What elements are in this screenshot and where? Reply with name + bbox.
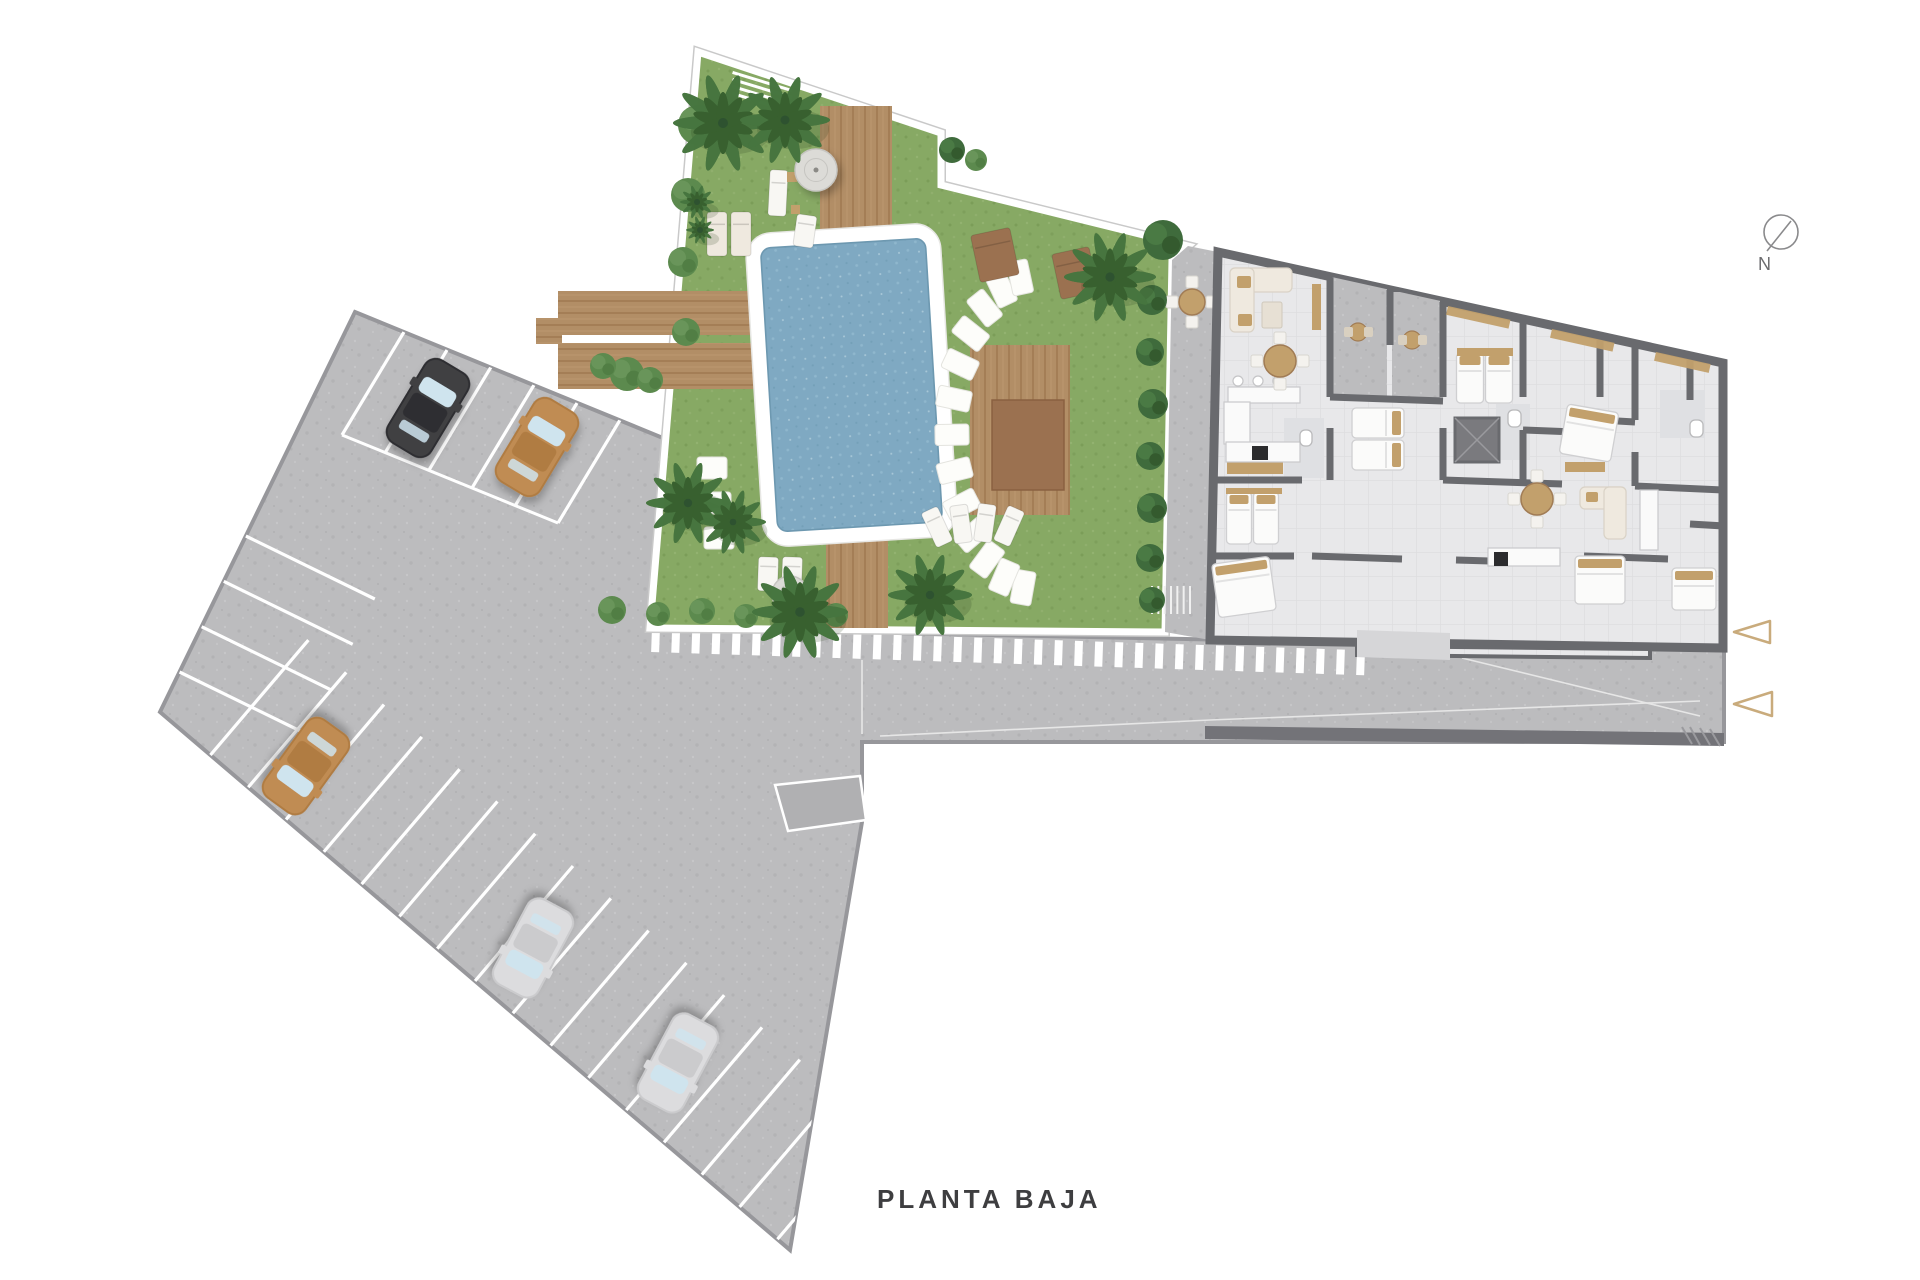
bush-shade bbox=[1162, 236, 1180, 254]
entry-marker-triangles bbox=[1734, 621, 1772, 716]
bed-pillow bbox=[1489, 356, 1510, 365]
bush-shade bbox=[649, 377, 661, 389]
chair bbox=[1274, 332, 1286, 344]
bed bbox=[1352, 408, 1404, 438]
palm-crown bbox=[781, 116, 790, 125]
interior-wall bbox=[1690, 524, 1724, 526]
bush-shade bbox=[951, 147, 963, 159]
bush-shade bbox=[975, 158, 985, 168]
border-stripe bbox=[1014, 639, 1023, 664]
border-stripe bbox=[1175, 644, 1184, 669]
chair bbox=[1166, 296, 1178, 308]
tv-sideboard bbox=[1227, 462, 1283, 474]
compass: N bbox=[1758, 215, 1798, 274]
palm-crown bbox=[795, 607, 805, 617]
sofa bbox=[1604, 487, 1626, 539]
lounger-base bbox=[768, 170, 788, 217]
tv-sideboard bbox=[1565, 462, 1605, 472]
border-stripe bbox=[853, 634, 862, 659]
toilet bbox=[1300, 430, 1312, 446]
border-stripe bbox=[1074, 641, 1083, 666]
interior-wall bbox=[1312, 556, 1402, 559]
round-table bbox=[1179, 289, 1205, 315]
sun-lounger bbox=[793, 214, 817, 248]
bed bbox=[1672, 568, 1716, 610]
bed-mattress bbox=[1647, 287, 1701, 344]
bed-pillow bbox=[1578, 559, 1622, 568]
site-plan-svg: N PLANTA BAJA bbox=[0, 0, 1920, 1280]
palm-crown bbox=[694, 199, 700, 205]
bed-pillow bbox=[1460, 356, 1481, 365]
stove bbox=[1494, 552, 1508, 566]
side-table bbox=[791, 205, 800, 214]
bush-shade bbox=[685, 329, 698, 342]
palm-crown bbox=[730, 519, 737, 526]
palm-crown bbox=[697, 227, 703, 233]
swimming-pool bbox=[745, 222, 959, 547]
palm-crown bbox=[1105, 272, 1114, 281]
palm-crown bbox=[684, 499, 692, 507]
chair bbox=[1554, 493, 1566, 505]
north-label: N bbox=[1758, 254, 1772, 274]
chair bbox=[1251, 355, 1263, 367]
deck-pergola bbox=[992, 400, 1064, 490]
bed bbox=[1227, 492, 1252, 544]
bush-shade bbox=[745, 614, 756, 625]
border-stripe bbox=[1276, 647, 1285, 672]
border-stripe bbox=[752, 630, 761, 655]
coffee-table bbox=[1262, 302, 1282, 328]
border-stripe bbox=[994, 638, 1003, 663]
bush-shade bbox=[701, 608, 713, 620]
border-stripe bbox=[873, 634, 882, 659]
bush-shade bbox=[602, 363, 614, 375]
sofa-cushion bbox=[1237, 276, 1251, 288]
headboard bbox=[1457, 348, 1513, 356]
stove bbox=[1252, 446, 1268, 460]
bush-shade bbox=[1151, 597, 1163, 609]
border-stripe bbox=[1215, 645, 1224, 670]
bistro-chair bbox=[1344, 327, 1353, 337]
chair bbox=[1297, 355, 1309, 367]
bed-pillow bbox=[1230, 495, 1249, 504]
bush-shade bbox=[1152, 401, 1166, 415]
interior-wall bbox=[1443, 480, 1562, 484]
border-stripe bbox=[1316, 649, 1325, 674]
bed-pillow bbox=[1392, 411, 1401, 435]
bed bbox=[1647, 287, 1701, 344]
bed bbox=[1212, 556, 1277, 618]
chair bbox=[1531, 470, 1543, 482]
bistro-chair bbox=[1364, 327, 1373, 337]
parasol-pole bbox=[814, 168, 819, 173]
lounger-fold bbox=[772, 183, 786, 184]
ramp-outline bbox=[775, 776, 866, 831]
lounger-base bbox=[731, 212, 751, 256]
bush-shade bbox=[682, 259, 696, 273]
round-table bbox=[1521, 483, 1553, 515]
pool-water bbox=[760, 238, 942, 532]
border-stripe bbox=[933, 636, 942, 661]
bed bbox=[1559, 404, 1619, 462]
bed bbox=[1575, 556, 1625, 604]
border-stripe bbox=[1114, 642, 1123, 667]
bistro-chair bbox=[1398, 335, 1407, 345]
border-stripe bbox=[913, 636, 922, 661]
sofa-cushion bbox=[1238, 314, 1252, 326]
kitchen-counter bbox=[1228, 387, 1300, 403]
sofa-cushion bbox=[1586, 492, 1598, 502]
bed-pillow bbox=[1257, 495, 1276, 504]
bistro-chair bbox=[1418, 335, 1427, 345]
bed-pillow bbox=[1658, 291, 1697, 309]
border-stripe bbox=[953, 637, 962, 662]
bush-shade bbox=[1149, 453, 1162, 466]
tv-sideboard bbox=[1312, 284, 1321, 330]
palm-crown bbox=[926, 591, 934, 599]
stepping-stone bbox=[935, 424, 969, 446]
bed-sheet-fold bbox=[1656, 305, 1695, 315]
border-stripe bbox=[1155, 643, 1164, 668]
bed bbox=[1254, 492, 1279, 544]
wood-deck bbox=[536, 318, 562, 344]
bar-stool bbox=[1233, 376, 1243, 386]
bed-pillow bbox=[1675, 571, 1713, 580]
bush-shade bbox=[1149, 349, 1162, 362]
kitchen-counter bbox=[1224, 402, 1250, 444]
bush-shade bbox=[1151, 505, 1165, 519]
border-stripe bbox=[1195, 645, 1204, 670]
bar-stool bbox=[1253, 376, 1263, 386]
sun-lounger bbox=[731, 212, 751, 256]
chair bbox=[1508, 493, 1520, 505]
border-stripe bbox=[1336, 649, 1345, 674]
bush-shade bbox=[657, 612, 668, 623]
border-stripe bbox=[893, 635, 902, 660]
compass-needle-icon bbox=[1767, 221, 1791, 251]
border-stripe bbox=[1135, 643, 1144, 668]
plan-title: PLANTA BAJA bbox=[877, 1184, 1102, 1214]
palm-crown bbox=[718, 118, 728, 128]
bush-shade bbox=[611, 607, 624, 620]
border-stripe bbox=[1235, 646, 1244, 671]
headboard bbox=[1226, 488, 1282, 494]
border-stripe bbox=[973, 638, 982, 663]
bed bbox=[1486, 353, 1513, 403]
entry-arrow-icon bbox=[1734, 692, 1772, 716]
border-stripe bbox=[1034, 639, 1043, 664]
kitchen-counter bbox=[1640, 490, 1658, 550]
site-plan-canvas: N PLANTA BAJA bbox=[0, 0, 1920, 1280]
lounger-base bbox=[793, 214, 817, 248]
interior-wall bbox=[1330, 397, 1443, 401]
apartment-building bbox=[1210, 252, 1724, 660]
round-table bbox=[1264, 345, 1296, 377]
lounger-fold bbox=[760, 566, 776, 567]
entry-arrow-icon bbox=[1734, 621, 1770, 643]
border-stripe bbox=[1054, 640, 1063, 665]
chair bbox=[1186, 316, 1198, 328]
bush-shade bbox=[1149, 555, 1162, 568]
interior-wall bbox=[1635, 486, 1724, 490]
compass-circle-icon bbox=[1764, 215, 1798, 249]
bed-pillow bbox=[1392, 443, 1401, 467]
bush-shade bbox=[1151, 297, 1165, 311]
toilet bbox=[1690, 420, 1703, 437]
sun-lounger bbox=[768, 170, 788, 217]
entrance-walk bbox=[1357, 630, 1450, 660]
border-stripe bbox=[1094, 641, 1103, 666]
bed bbox=[1457, 353, 1484, 403]
border-stripe bbox=[1296, 648, 1305, 673]
chair bbox=[1531, 516, 1543, 528]
chair bbox=[1274, 378, 1286, 390]
bed bbox=[1352, 440, 1404, 470]
chair bbox=[1186, 276, 1198, 288]
toilet bbox=[1508, 410, 1521, 427]
border-stripe bbox=[1255, 647, 1264, 672]
